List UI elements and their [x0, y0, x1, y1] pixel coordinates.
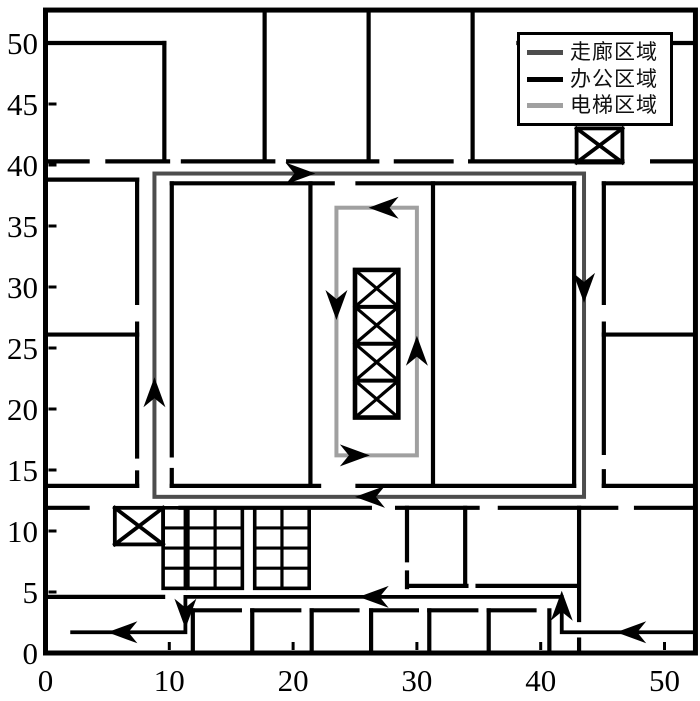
- y-tick-label: 40: [7, 148, 38, 183]
- x-tick-label: 30: [401, 663, 432, 698]
- legend-item-label: 走廊区域: [570, 42, 658, 63]
- legend-item-elevator: 电梯区域: [527, 95, 666, 116]
- x-tick-label: 50: [649, 663, 680, 698]
- x-tick-label: 40: [525, 663, 556, 698]
- y-tick-label: 25: [7, 331, 38, 366]
- y-tick-label: 30: [7, 270, 38, 305]
- y-tick-label: 20: [7, 392, 38, 427]
- elevator-line-swatch: [527, 103, 563, 108]
- legend-item-label: 电梯区域: [570, 95, 658, 116]
- x-tick-label: 20: [278, 663, 309, 698]
- y-tick-label: 50: [7, 26, 38, 61]
- y-tick-label: 0: [23, 636, 39, 671]
- y-tick-label: 35: [7, 209, 38, 244]
- y-tick-label: 10: [7, 514, 38, 549]
- legend-item-label: 办公区域: [570, 69, 658, 90]
- y-tick-label: 5: [23, 575, 39, 610]
- x-tick-label: 10: [154, 663, 185, 698]
- corridor-line-swatch: [527, 50, 563, 55]
- office-line-swatch: [527, 77, 563, 82]
- x-tick-label: 0: [38, 663, 54, 698]
- floor-plan-figure: 0102030405005101520253035404550 走廊区域 办公区…: [0, 0, 700, 701]
- y-tick-label: 45: [7, 87, 38, 122]
- legend-item-corridor: 走廊区域: [527, 42, 666, 63]
- legend-item-office: 办公区域: [527, 69, 666, 90]
- legend: 走廊区域 办公区域 电梯区域: [517, 32, 673, 126]
- y-tick-label: 15: [7, 453, 38, 488]
